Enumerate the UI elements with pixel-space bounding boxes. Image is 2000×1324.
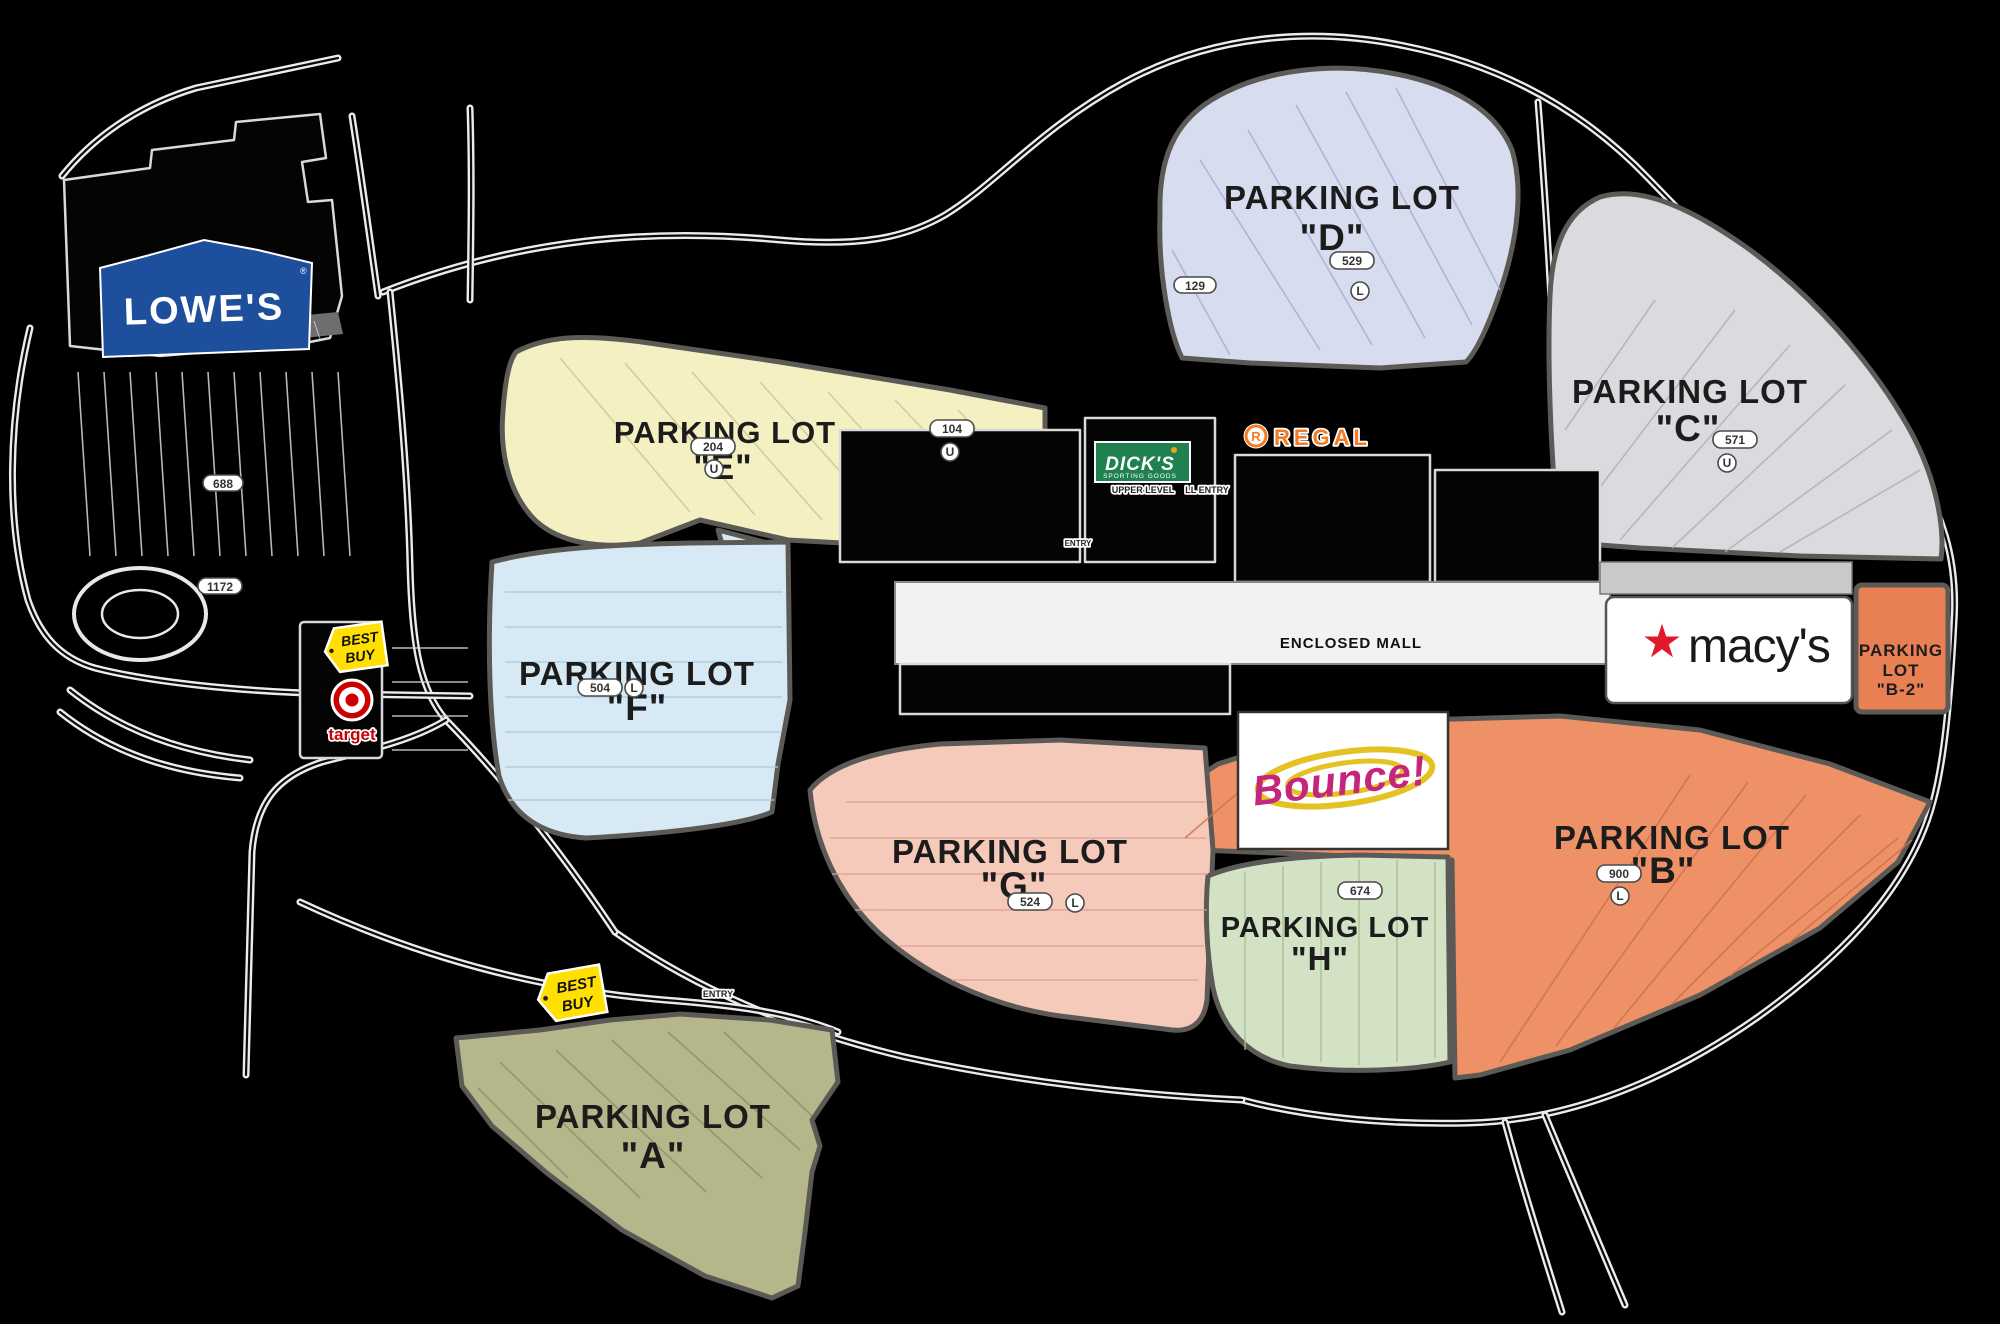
mall-northwest-shops	[840, 430, 1080, 562]
marker-e2-count: 204	[703, 440, 723, 454]
mall-south-shops	[900, 664, 1230, 714]
lot-b2-line2: LOT	[1883, 661, 1920, 680]
entry-label-mall: ENTRY	[1065, 539, 1092, 548]
lot-b2-line3: "B-2"	[1877, 680, 1926, 699]
mall-site-map: PARKING LOT "D" PARKING LOT "C" PARKING …	[0, 0, 2000, 1324]
marker-b-count: 900	[1609, 867, 1629, 881]
lot-h-letter: "H"	[1291, 940, 1349, 977]
lowes-lot-aisles	[78, 372, 350, 556]
marker-g-level: L	[1071, 896, 1078, 910]
marker-f-count: 504	[590, 681, 610, 695]
regal-logo: R REGAL	[1244, 424, 1372, 451]
marker-f-level: L	[630, 681, 637, 695]
entry-label-lot-a: ENTRY	[703, 989, 733, 999]
lowes-registered-mark: ®	[300, 266, 307, 276]
marker-c-count: 571	[1725, 433, 1745, 447]
target-logo-text: target	[328, 725, 376, 744]
macys-star-icon: ★	[1641, 615, 1682, 667]
marker-e-level: U	[946, 445, 955, 459]
regal-logo-text: REGAL	[1274, 425, 1371, 450]
marker-g-count: 524	[1020, 895, 1040, 909]
marker-b-level: L	[1616, 889, 1623, 903]
enclosed-mall-corridor	[895, 582, 1610, 664]
upper-level-label: UPPER LEVEL	[1112, 485, 1175, 495]
mall-east-shops	[1435, 470, 1600, 582]
pond-inner-outline	[102, 590, 178, 638]
marker-e2-level: U	[710, 462, 719, 476]
dicks-logo: DICK'S SPORTING GOODS	[1095, 442, 1190, 482]
marker-d2-count: 129	[1185, 279, 1205, 293]
marker-d-count: 529	[1342, 254, 1362, 268]
dicks-basketball-icon	[1171, 447, 1177, 453]
macys-upper-band	[1600, 562, 1852, 594]
target-logo: target	[328, 680, 376, 744]
lot-c-title: PARKING LOT	[1572, 373, 1808, 410]
marker-lowes2-count: 1172	[207, 580, 233, 594]
enclosed-mall-label: ENCLOSED MALL	[1280, 635, 1422, 652]
marker-e-count: 104	[942, 422, 962, 436]
dicks-logo-subtext: SPORTING GOODS	[1103, 473, 1177, 480]
dicks-logo-text: DICK'S	[1105, 454, 1175, 475]
marker-c-level: U	[1723, 456, 1732, 470]
marker-h-count: 674	[1350, 884, 1370, 898]
map-canvas: PARKING LOT "D" PARKING LOT "C" PARKING …	[0, 0, 2000, 1324]
cinema-building	[1235, 455, 1430, 582]
lot-a-letter: "A"	[621, 1135, 686, 1176]
lot-c-letter: "C"	[1656, 408, 1721, 449]
lot-a-title: PARKING LOT	[535, 1098, 771, 1135]
best-buy-logo-lot-a: BEST BUY	[534, 965, 607, 1024]
lot-d-title: PARKING LOT	[1224, 179, 1460, 216]
macys-logo: ★ macy's	[1641, 615, 1829, 673]
regal-r-glyph: R	[1251, 429, 1261, 444]
marker-d-level: L	[1356, 284, 1363, 298]
lowes-logo-text: LOWE'S	[123, 286, 285, 334]
pond-outline	[74, 568, 206, 660]
lot-b2-line1: PARKING	[1859, 641, 1943, 660]
marker-lowes-count: 688	[213, 477, 233, 491]
macys-logo-text: macy's	[1688, 620, 1830, 673]
ll-entry-label: LL ENTRY	[1185, 485, 1229, 495]
